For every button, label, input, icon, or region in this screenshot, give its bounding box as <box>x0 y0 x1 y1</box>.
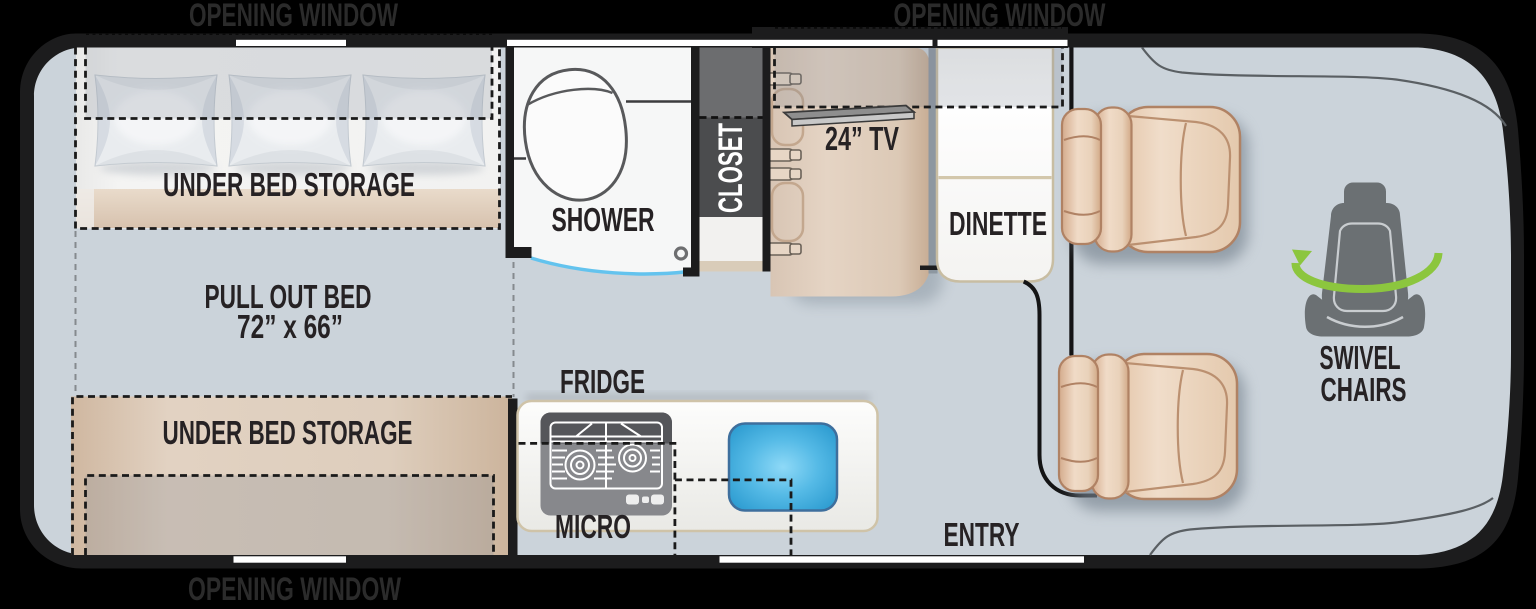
svg-text:OPENING WINDOW: OPENING WINDOW <box>188 571 402 607</box>
svg-text:CLOSET: CLOSET <box>712 123 750 213</box>
svg-text:72” x 66”: 72” x 66” <box>237 308 343 345</box>
svg-text:OPENING WINDOW: OPENING WINDOW <box>894 0 1107 33</box>
svg-text:24” TV: 24” TV <box>825 120 899 157</box>
svg-text:UNDER BED STORAGE: UNDER BED STORAGE <box>163 166 415 203</box>
svg-text:DINETTE: DINETTE <box>949 205 1047 242</box>
svg-text:MICRO: MICRO <box>555 508 631 545</box>
svg-text:SHOWER: SHOWER <box>552 201 655 238</box>
svg-text:CHAIRS: CHAIRS <box>1321 371 1407 408</box>
svg-text:ENTRY: ENTRY <box>944 516 1020 553</box>
svg-text:FRIDGE: FRIDGE <box>560 363 645 400</box>
svg-text:OPENING WINDOW: OPENING WINDOW <box>189 0 399 33</box>
svg-text:UNDER BED STORAGE: UNDER BED STORAGE <box>163 414 413 451</box>
